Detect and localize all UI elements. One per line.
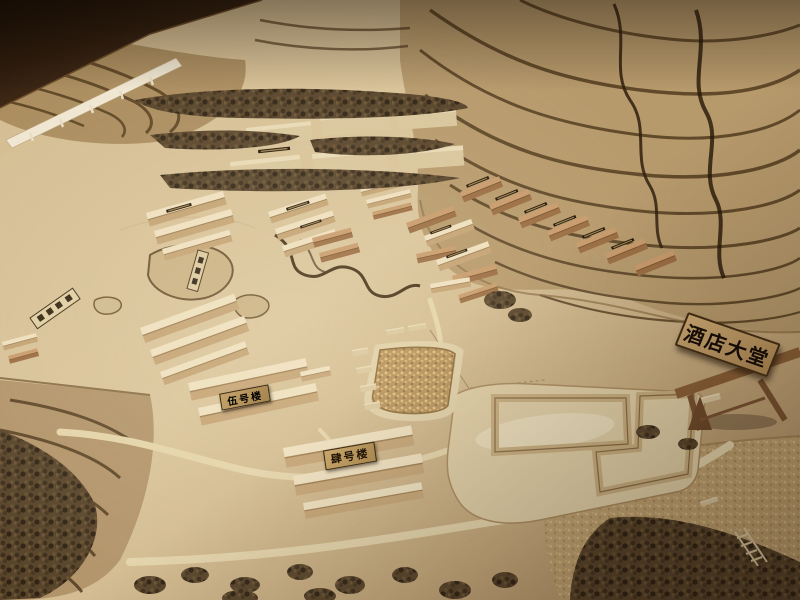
model-scene <box>0 0 800 600</box>
model-photo: 酒店大堂 伍号楼 肆号楼 <box>0 0 800 600</box>
corner-shadow-overlay <box>0 0 800 600</box>
